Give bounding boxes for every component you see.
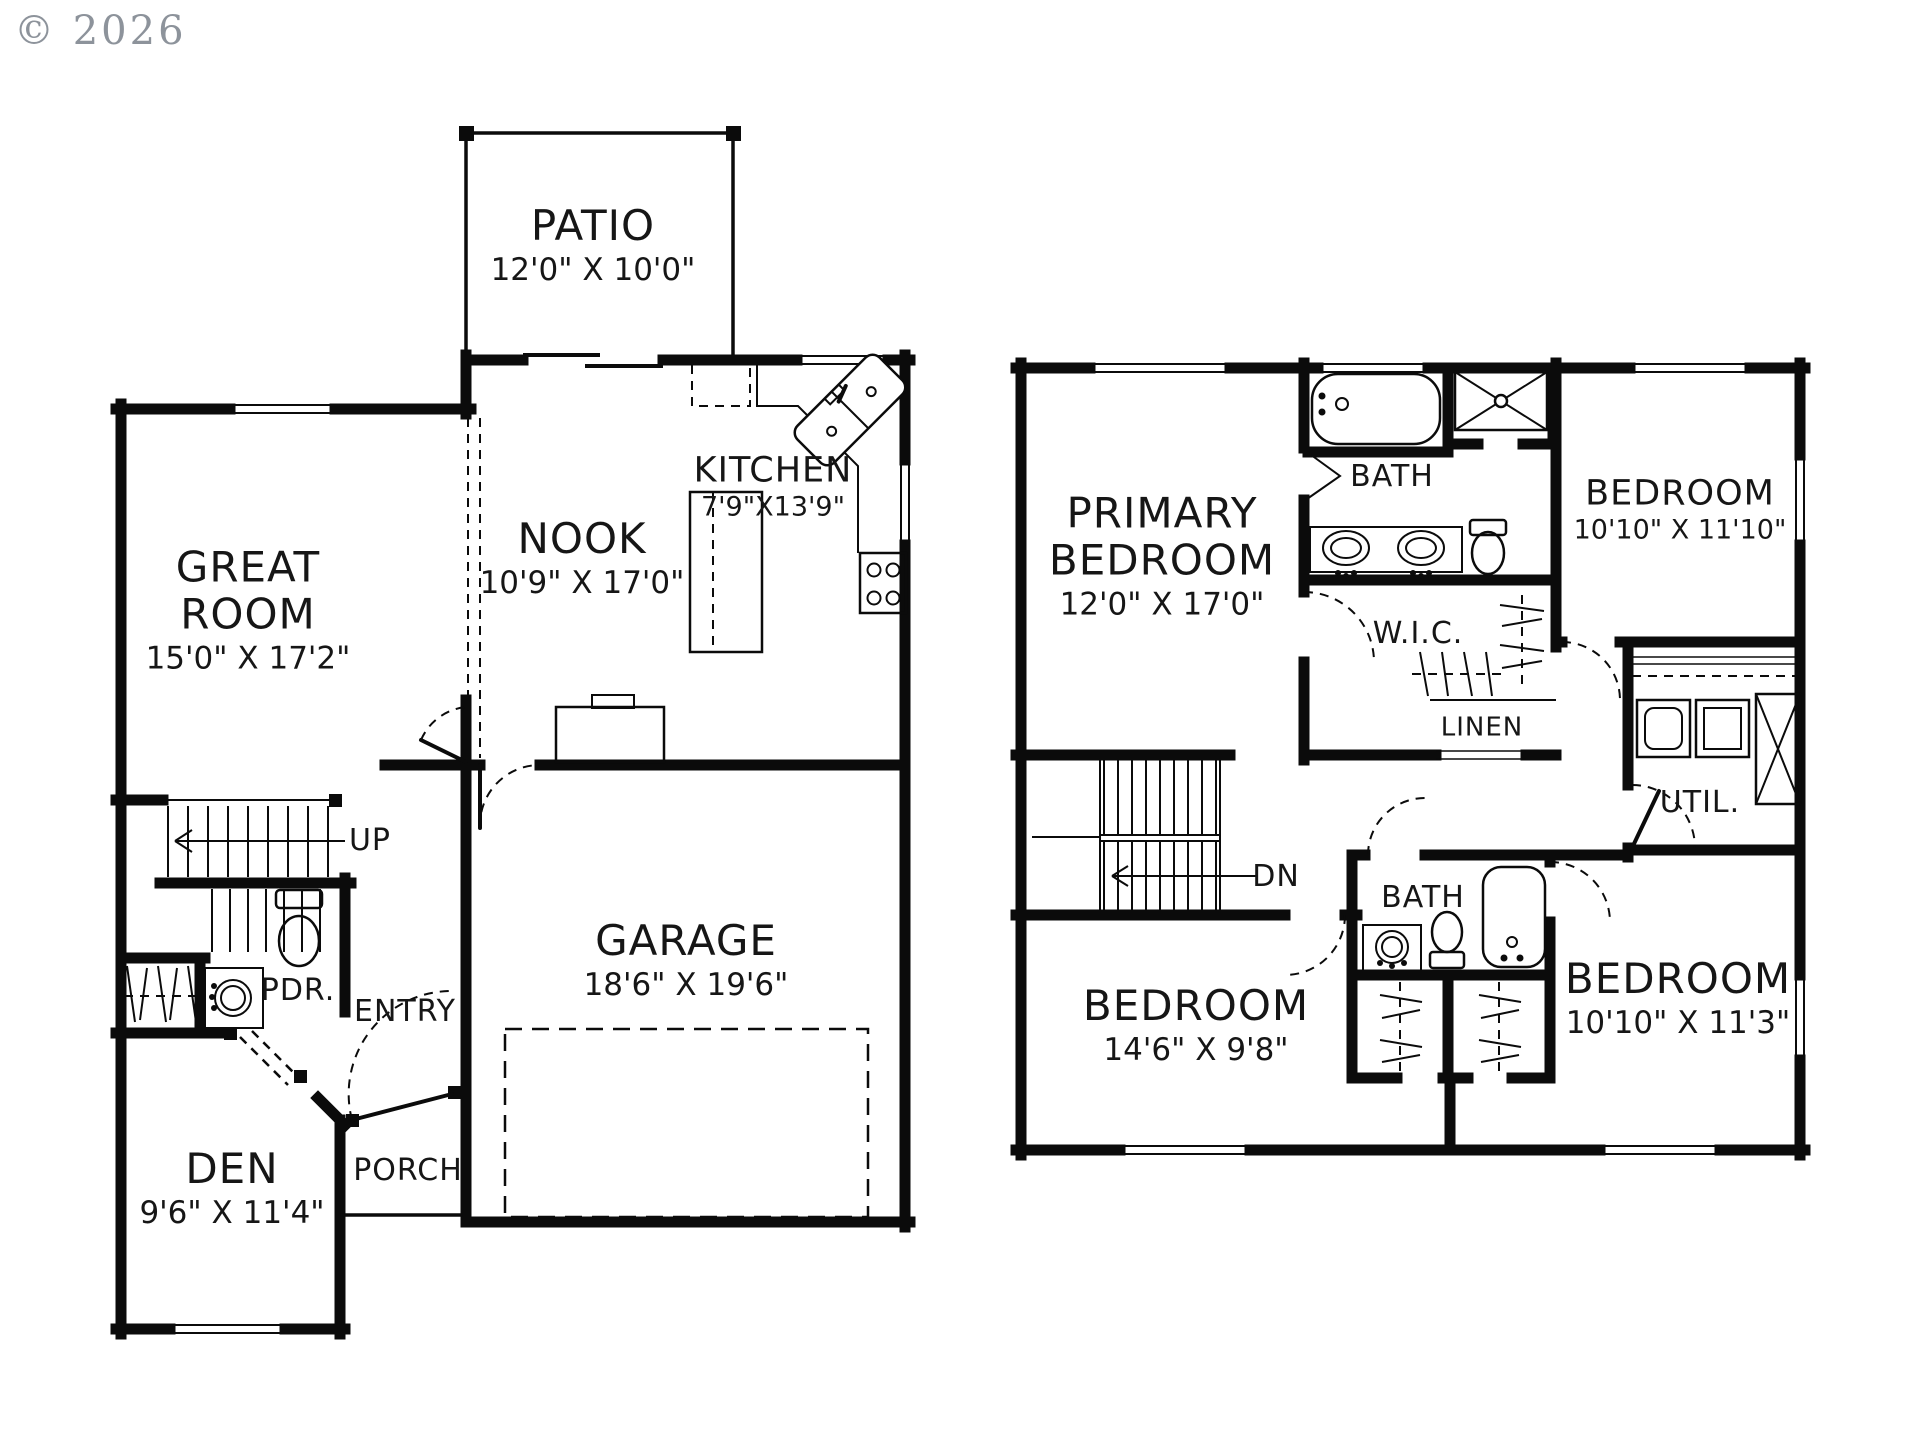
label-garage: GARAGE 18'6" X 19'6" (584, 917, 789, 1003)
sliding-door (523, 355, 663, 366)
stairs-down (1032, 757, 1256, 913)
label-wic: W.I.C. (1373, 617, 1464, 651)
patio-post (726, 126, 741, 141)
primary-door-arc (1304, 592, 1374, 662)
bedroom-sw-door-arc (1285, 915, 1345, 975)
bathtub (1483, 867, 1545, 967)
label-kitchen: KITCHEN 7'9"X13'9" (694, 451, 853, 522)
garage-door-dashed (505, 1029, 868, 1217)
label-bedroom-sw: BEDROOM 14'6" X 9'8" (1083, 982, 1309, 1068)
label-nook: NOOK 10'9" X 17'0" (480, 515, 685, 601)
label-porch: PORCH (353, 1154, 463, 1188)
toilet-fixture (1432, 912, 1462, 952)
label-stairs-up: UP (349, 824, 391, 858)
refrigerator (692, 362, 750, 406)
primary-bath-door (1307, 452, 1340, 499)
label-bath-lower: BATH (1381, 881, 1465, 915)
built-in-counter (556, 707, 664, 762)
label-entry: ENTRY (354, 995, 456, 1029)
label-bedroom-se: BEDROOM 10'10" X 11'3" (1565, 955, 1791, 1041)
label-den: DEN 9'6" X 11'4" (139, 1145, 324, 1231)
copyright-text: © 2026 (14, 8, 187, 54)
pantry-door (421, 707, 466, 762)
garage-door-to-house (480, 765, 540, 828)
vanity-sink (1398, 531, 1444, 565)
label-primary-bedroom: PRIMARY BEDROOM 12'0" X 17'0" (1049, 490, 1275, 623)
label-bedroom-ne: BEDROOM 10'10" X 11'10" (1574, 474, 1787, 545)
util-door-leaf (1632, 791, 1659, 848)
stair-arrow (175, 830, 345, 852)
label-linen: LINEN (1441, 713, 1523, 742)
toilet-fixture (276, 890, 322, 908)
vanity-sink (1323, 531, 1369, 565)
patio-post (459, 126, 474, 141)
label-patio: PATIO 12'0" X 10'0" (491, 202, 696, 288)
label-bath-upper: BATH (1350, 460, 1434, 494)
range (860, 553, 906, 613)
label-powder-room: PDR. (261, 974, 336, 1008)
label-util: UTIL. (1660, 786, 1740, 820)
floorplan-sheet: © 2026 PATIO 12'0" X 10'0" GREAT ROOM 15… (0, 0, 1920, 1440)
bath-lower-door-arc (1368, 798, 1425, 855)
den-door (224, 1027, 307, 1085)
stair-arrow (1112, 866, 1256, 886)
bathtub (1312, 374, 1440, 444)
bedroom-se-door-arc (1550, 862, 1610, 922)
coat-closet-hangers (124, 966, 198, 1022)
bedroom-ne-door-arc (1562, 642, 1620, 700)
label-great-room: GREAT ROOM 15'0" X 17'2" (146, 544, 351, 677)
round-sink (1376, 931, 1408, 963)
label-stairs-down: DN (1252, 860, 1300, 894)
